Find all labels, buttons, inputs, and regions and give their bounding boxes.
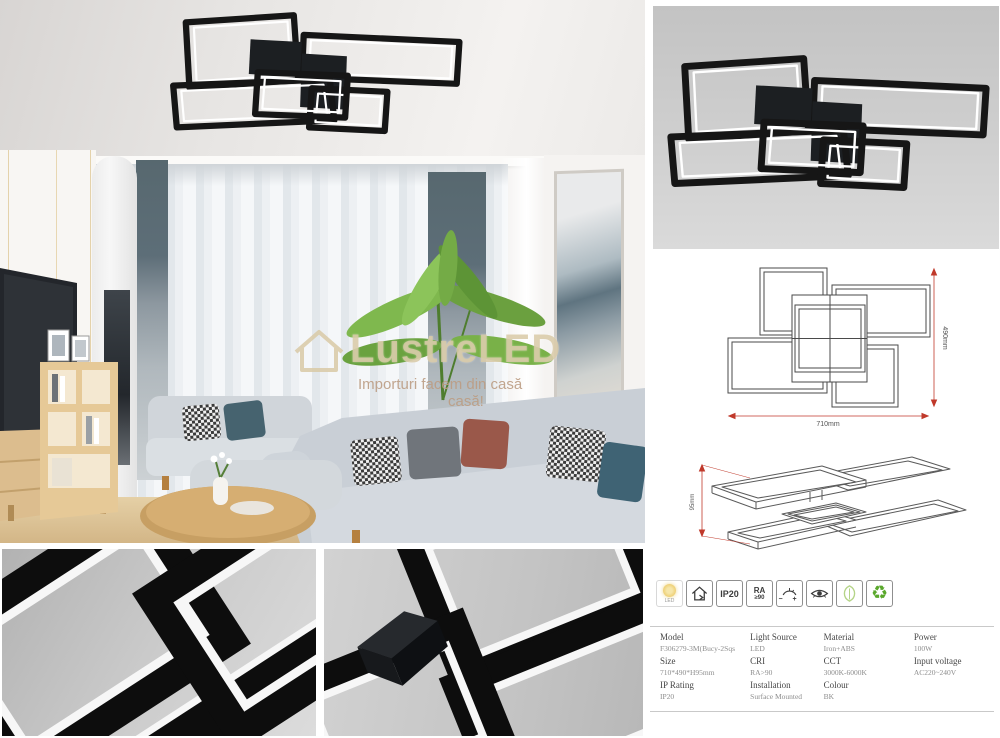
spec-colour: ColourBK: [824, 680, 914, 701]
product-listing-image: LustreLED Importuri facem din casă casă!: [0, 0, 1000, 738]
dimension-label-width: 710mm: [816, 421, 840, 428]
product-photo: [651, 4, 1000, 251]
ceiling-light-fixture: [173, 15, 459, 131]
spec-material: MaterialIron+ABS: [824, 632, 914, 653]
cri-icon: RA ≥90: [746, 580, 773, 607]
room-scene: [0, 0, 645, 543]
side-view-diagram: 95mm: [650, 440, 970, 552]
dimmable-icon: − +: [776, 580, 803, 607]
shelf-unit: [40, 362, 118, 520]
detail-photo-left: [0, 547, 318, 738]
spec-empty: [914, 680, 994, 701]
divider-top: [650, 626, 994, 627]
feature-icons: LED IP20 RA ≥90 − + ♻: [656, 580, 893, 607]
living-room-photo: LustreLED Importuri facem din casă casă!: [0, 0, 645, 543]
led-icon: LED: [656, 580, 683, 607]
recycle-icon: ♻: [866, 580, 893, 607]
ip20-icon: IP20: [716, 580, 743, 607]
photo-frames: [48, 330, 89, 361]
dimension-label-depth: 490mm: [941, 326, 948, 350]
spec-installation: InstallationSurface Mounted: [750, 680, 823, 701]
spec-cct: CCT3000K-6000K: [824, 656, 914, 677]
dimension-label-height: 95mm: [690, 494, 696, 511]
potted-plant: [341, 229, 555, 400]
spec-size: Size710*490*H95mm: [660, 656, 750, 677]
spec-ip-rating: IP RatingIP20: [660, 680, 750, 701]
divider-bottom: [650, 711, 994, 712]
led-bulb-glyph: [663, 584, 676, 597]
spec-input-voltage: Input voltageAC220~240V: [914, 656, 994, 677]
product-photo-fixture: [653, 6, 999, 249]
top-view-diagram: 710mm 490mm: [693, 262, 951, 430]
indoor-use-icon: [686, 580, 713, 607]
spec-cri: CRIRA>90: [750, 656, 823, 677]
spec-light-source: Light SourceLED: [750, 632, 823, 653]
spec-table: ModelF306279-3M(Bucy-2Sqs Light SourceLE…: [660, 632, 994, 701]
spec-power: Power100W: [914, 632, 994, 653]
detail-photo-right: [322, 547, 645, 738]
anti-glare-eye-icon: [806, 580, 833, 607]
eco-leaf-icon: [836, 580, 863, 607]
spec-model: ModelF306279-3M(Bucy-2Sqs: [660, 632, 750, 653]
